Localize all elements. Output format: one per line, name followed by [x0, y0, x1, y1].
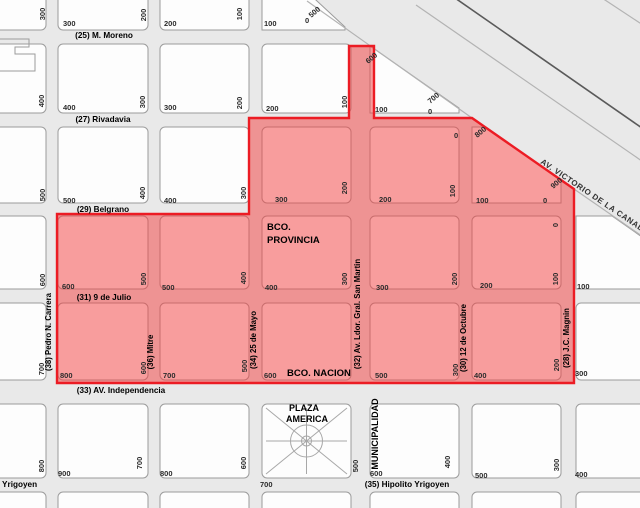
- address-number: 100: [577, 282, 590, 291]
- address-number: 0: [305, 16, 309, 25]
- address-number: 500: [38, 189, 47, 202]
- address-number: 600: [264, 371, 277, 380]
- address-number: 100: [551, 273, 560, 286]
- address-number: 600: [239, 457, 248, 470]
- city-block: [58, 492, 148, 508]
- map-stage: 3002001004003002001005004003002001000600…: [0, 0, 640, 508]
- address-number: 800: [60, 371, 73, 380]
- address-number: 100: [264, 19, 277, 28]
- address-number: 200: [450, 273, 459, 286]
- city-block: [472, 404, 561, 478]
- city-block: [262, 492, 351, 508]
- street-label: (33) AV. Independencia: [77, 386, 166, 395]
- address-number: 200: [379, 195, 392, 204]
- address-number: 200: [480, 281, 493, 290]
- address-number: 200: [552, 359, 561, 372]
- address-number: 100: [476, 196, 489, 205]
- street-label: (28) J.C. Magnin: [562, 308, 571, 368]
- poi-label: MUNICIPALIDAD: [370, 398, 380, 470]
- street-label: o Yrigoyen: [0, 480, 37, 489]
- address-number: 400: [63, 103, 76, 112]
- city-block: [576, 492, 640, 508]
- address-number: 300: [575, 369, 588, 378]
- address-number: 400: [138, 187, 147, 200]
- address-number: 700: [163, 371, 176, 380]
- street-label: (34) 25 de Mayo: [249, 311, 258, 369]
- address-number: 200: [235, 97, 244, 110]
- poi-label: AMERICA: [286, 414, 328, 424]
- address-number: 0: [454, 131, 458, 140]
- address-number: 0: [543, 196, 547, 205]
- street-label: (31) 9 de Julio: [77, 293, 132, 302]
- address-number: 0: [428, 107, 432, 116]
- poi-label: PROVINCIA: [267, 235, 320, 246]
- address-number: 500: [240, 360, 249, 373]
- address-number: 300: [63, 19, 76, 28]
- address-number: 500: [162, 283, 175, 292]
- address-number: 200: [164, 19, 177, 28]
- city-block: [160, 492, 249, 508]
- address-number: 0: [551, 223, 560, 227]
- street-label: (29) Belgrano: [77, 205, 129, 214]
- address-number: 700: [135, 457, 144, 470]
- address-number: 200: [340, 182, 349, 195]
- address-number: 400: [575, 470, 588, 479]
- address-number: 300: [275, 195, 288, 204]
- address-number: 500: [351, 460, 360, 473]
- address-number: 300: [340, 273, 349, 286]
- address-number: 100: [235, 8, 244, 21]
- address-number: 300: [38, 8, 47, 21]
- address-number: 700: [260, 480, 273, 489]
- city-block: [160, 127, 249, 203]
- address-number: 500: [139, 273, 148, 286]
- address-number: 400: [474, 371, 487, 380]
- address-number: 200: [266, 104, 279, 113]
- city-block: [0, 492, 46, 508]
- address-number: 500: [63, 196, 76, 205]
- city-block: [576, 404, 640, 478]
- address-number: 100: [340, 96, 349, 109]
- address-number: 600: [38, 274, 47, 287]
- poi-label: PLAZA: [289, 403, 319, 413]
- address-number: 300: [239, 187, 248, 200]
- address-number: 500: [475, 471, 488, 480]
- city-block: [160, 404, 249, 478]
- city-block: [58, 127, 148, 203]
- address-number: 100: [375, 105, 388, 114]
- address-number: 300: [552, 459, 561, 472]
- address-number: 400: [239, 272, 248, 285]
- address-number: 900: [58, 469, 71, 478]
- city-map: 3002001004003002001005004003002001000600…: [0, 0, 640, 508]
- street-label: (30) 12 de Octubre: [459, 303, 468, 372]
- street-label: (25) M. Moreno: [75, 31, 133, 40]
- address-number: 400: [443, 456, 452, 469]
- street-label: (35) Hipolito Yrigoyen: [365, 480, 449, 489]
- address-number: 600: [62, 282, 75, 291]
- address-number: 800: [37, 460, 46, 473]
- poi-label: BCO. NACION: [287, 368, 351, 379]
- address-number: 300: [164, 103, 177, 112]
- address-number: 400: [164, 196, 177, 205]
- street-label: (27) Rivadavia: [75, 115, 131, 124]
- street-label: (38) Pedro N. Carrera: [44, 292, 53, 371]
- city-block: [472, 492, 561, 508]
- address-number: 100: [448, 185, 457, 198]
- poi-label: BCO.: [267, 222, 291, 233]
- address-number: 300: [376, 283, 389, 292]
- address-number: 800: [160, 469, 173, 478]
- street-label: (36) Mitre: [146, 334, 155, 369]
- address-number: 200: [139, 9, 148, 22]
- address-number: 400: [265, 283, 278, 292]
- street-label: (32) Av. Ldor. Gral. San Martin: [353, 259, 362, 369]
- address-number: 400: [37, 95, 46, 108]
- city-block: [370, 492, 459, 508]
- address-number: 500: [375, 371, 388, 380]
- city-block: [262, 44, 351, 113]
- address-number: 300: [138, 96, 147, 109]
